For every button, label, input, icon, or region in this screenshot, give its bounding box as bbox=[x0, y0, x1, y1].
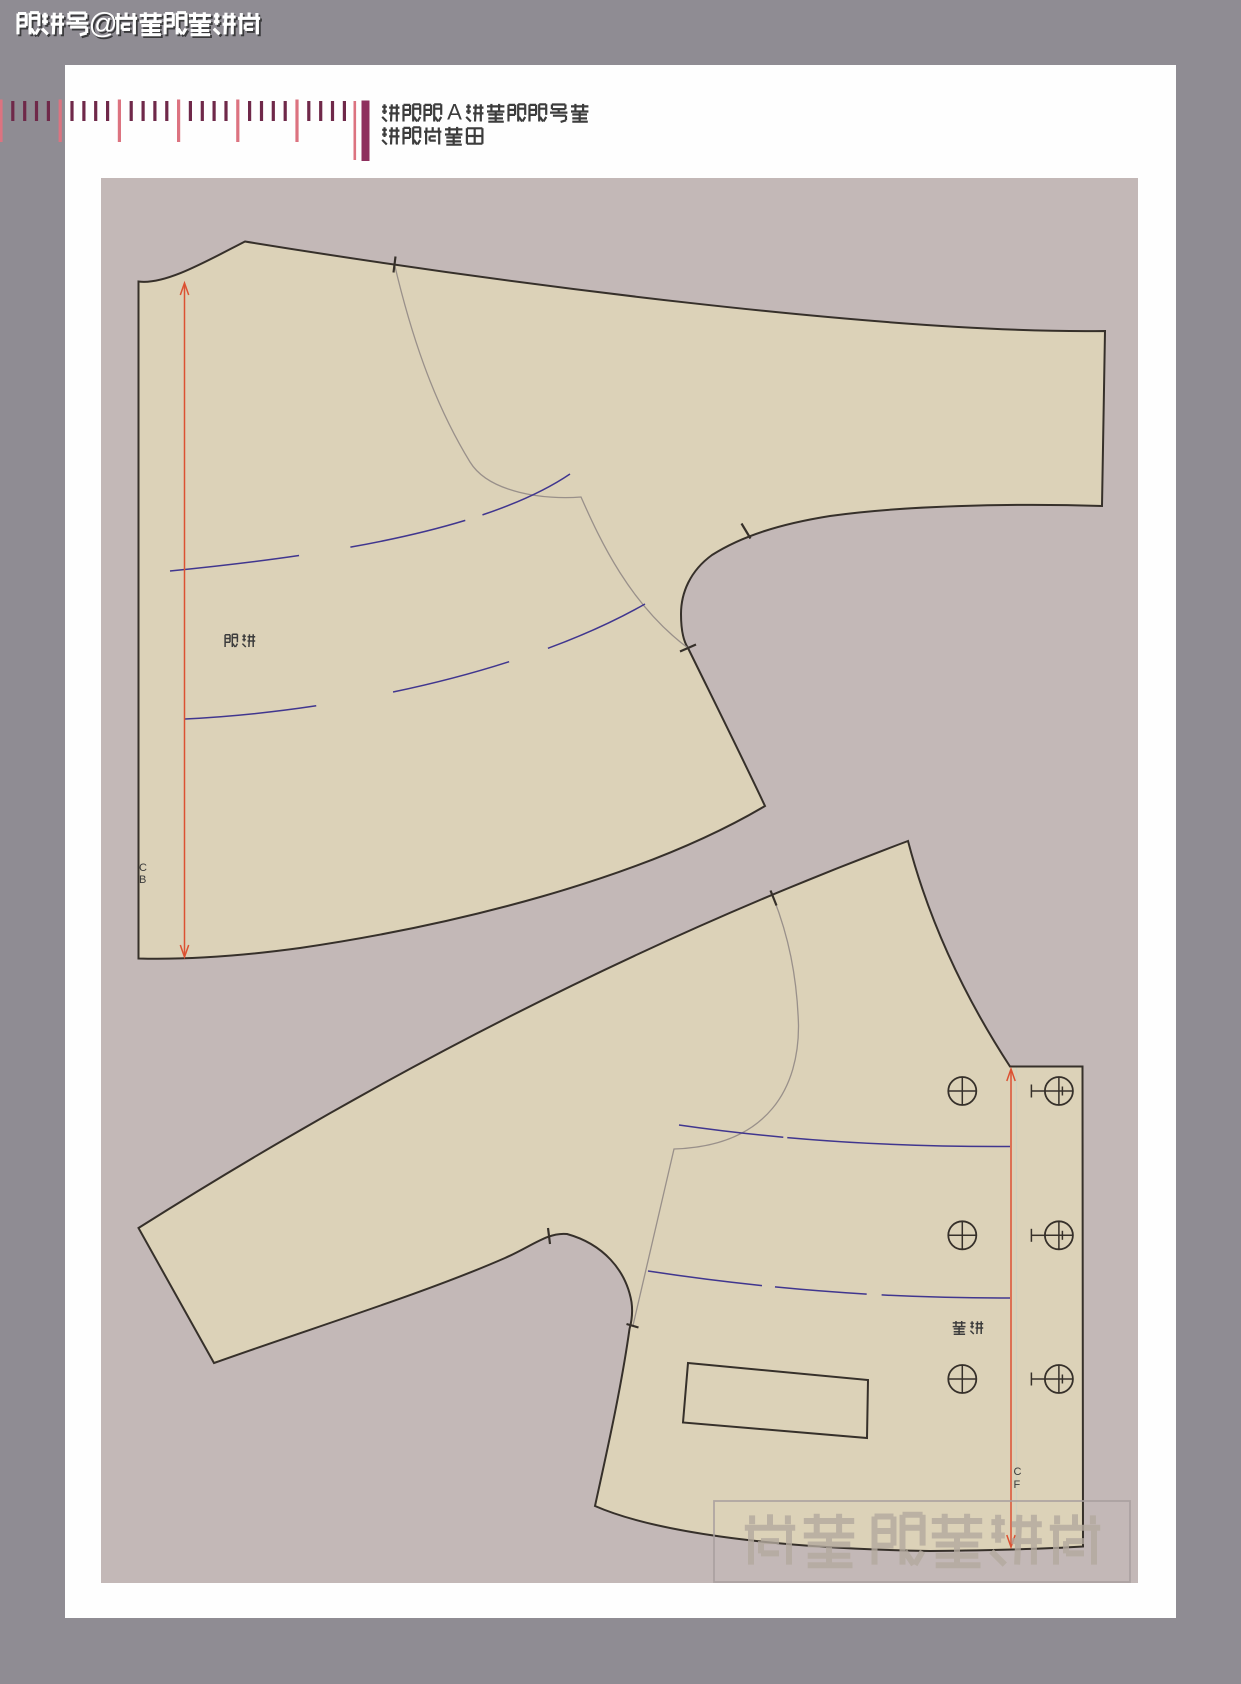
svg-text:C: C bbox=[139, 862, 147, 874]
svg-text:F: F bbox=[1014, 1479, 1021, 1491]
svg-text:C: C bbox=[1014, 1466, 1022, 1478]
svg-text:@: @ bbox=[89, 8, 118, 40]
svg-text:B: B bbox=[139, 874, 146, 886]
svg-text:A: A bbox=[447, 100, 462, 125]
